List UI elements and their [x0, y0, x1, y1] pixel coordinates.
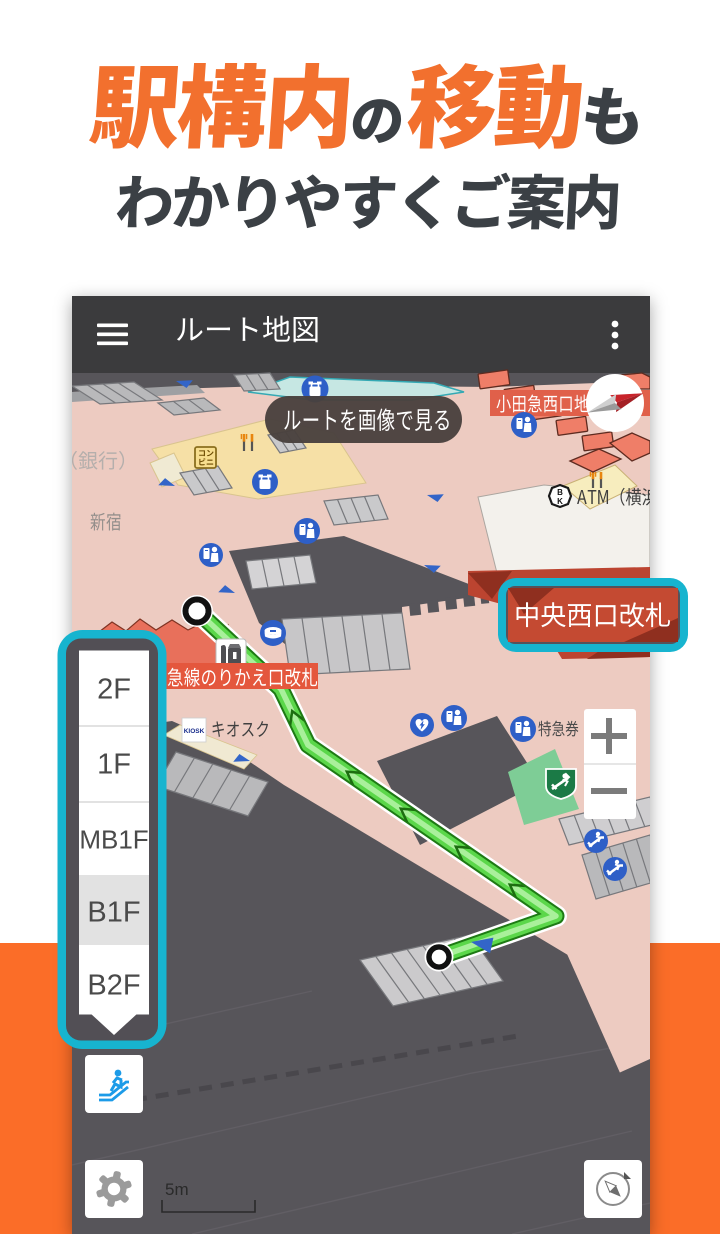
svg-text:MB1F: MB1F — [79, 825, 148, 855]
svg-text:B1F: B1F — [87, 897, 140, 929]
svg-text:B2F: B2F — [87, 970, 140, 1002]
svg-text:K: K — [557, 497, 563, 506]
svg-text:2F: 2F — [97, 674, 131, 706]
svg-text:KIOSK: KIOSK — [184, 728, 205, 735]
svg-text:5m: 5m — [165, 1180, 189, 1199]
svg-text:B: B — [557, 488, 563, 497]
svg-text:1F: 1F — [97, 749, 131, 781]
